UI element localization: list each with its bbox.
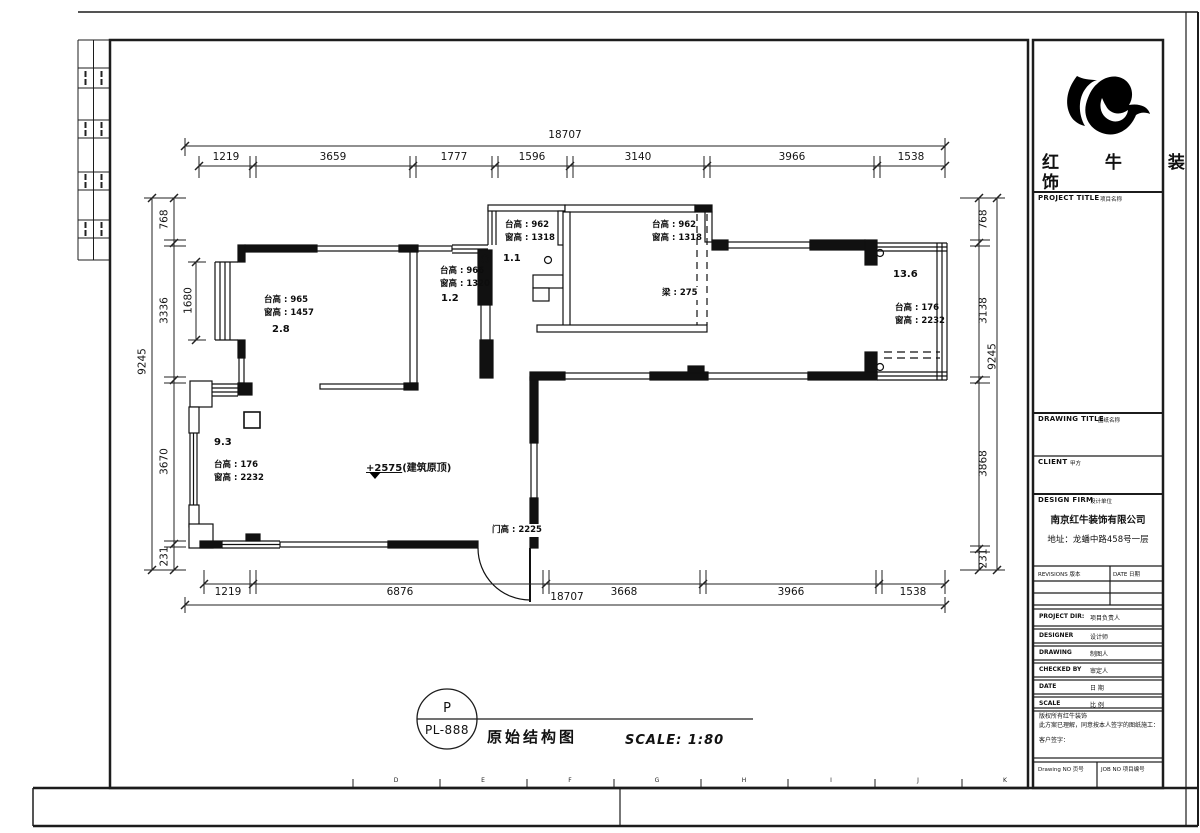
row-date-en: DATE <box>1039 683 1056 690</box>
grid-letter: I <box>825 777 837 784</box>
logo-text-line2: 饰 <box>1042 168 1059 193</box>
firm-name: 南京红牛装饰有限公司 <box>1037 512 1159 526</box>
dim-interior-window: 1680 <box>183 273 196 329</box>
area-room-e: 13.6 <box>893 269 918 280</box>
annotation-room-e: 台高 : 176 窗高 : 2232 <box>895 302 945 328</box>
annotation-beam: 梁 : 275 <box>662 287 698 300</box>
drawing-title-label-cn: 图纸名称 <box>1098 416 1120 424</box>
dim-top-seg: 3659 <box>303 151 363 164</box>
plan-linework <box>0 0 1200 833</box>
dim-right-seg: 768 <box>978 192 991 248</box>
client-label: CLIENT <box>1038 458 1067 466</box>
project-title-label-cn: 项目名称 <box>1100 195 1122 203</box>
row-designer-cn: 设计师 <box>1090 632 1108 641</box>
stamp-scale: SCALE: 1:80 <box>625 733 724 748</box>
dim-top-seg: 1596 <box>502 151 562 164</box>
dim-bottom-overall: 18707 <box>537 591 597 604</box>
dim-bottom-seg: 6876 <box>370 586 430 599</box>
row-project-dir-cn: 项目负责人 <box>1090 613 1120 622</box>
grid-letter: K <box>999 777 1011 784</box>
dim-left-seg: 3336 <box>159 283 172 339</box>
floor-plan-walls <box>189 205 947 602</box>
grid-letter: H <box>738 777 750 784</box>
dim-left-overall: 9245 <box>137 334 150 390</box>
rednow-bull-logo-icon <box>1067 76 1150 134</box>
stamp-title: 原始结构图 <box>487 726 577 747</box>
dim-bottom-seg: 3668 <box>594 586 654 599</box>
design-firm-label-cn: 设计单位 <box>1090 497 1112 505</box>
dim-right-seg: 231 <box>978 531 991 587</box>
dim-top-seg: 1777 <box>424 151 484 164</box>
client-signature-label: 客户签字： <box>1039 736 1159 745</box>
dim-top-seg: 3966 <box>762 151 822 164</box>
level-note: (建筑原顶) <box>402 463 451 474</box>
logo-text-line1: 红 牛 装 <box>1042 148 1200 173</box>
annotation-door-height: 门高 : 2225 <box>492 524 542 537</box>
dim-left-seg: 768 <box>159 192 172 248</box>
stamp-letter: P <box>437 701 457 716</box>
client-label-cn: 甲方 <box>1070 459 1081 467</box>
row-designer-en: DESIGNER <box>1039 632 1073 639</box>
dim-top-seg: 1219 <box>196 151 256 164</box>
dim-top-seg: 1538 <box>881 151 941 164</box>
grid-letter: D <box>390 777 402 784</box>
design-firm-label: DESIGN FIRM <box>1038 496 1093 504</box>
annotation-room-n1: 台高 : 962 窗高 : 1318 <box>505 219 555 245</box>
annotation-living: 台高 : 176 窗高 : 2232 <box>214 459 264 485</box>
level-marker-icon <box>369 472 381 479</box>
dim-top-overall: 18707 <box>535 129 595 142</box>
revisions-label: REVISIONS 版本 <box>1038 570 1080 578</box>
dim-right-seg: 3868 <box>978 436 991 492</box>
dim-bottom-seg: 1219 <box>198 586 258 599</box>
row-scale-en: SCALE <box>1039 700 1060 707</box>
stamp-code: PL-888 <box>420 723 474 737</box>
date-col-label: DATE 日期 <box>1113 570 1140 578</box>
row-drawing-en: DRAWING <box>1039 649 1072 656</box>
row-date-cn: 日 期 <box>1090 683 1104 692</box>
sheet-frame <box>33 12 1198 826</box>
copyright-notice-line1: 版权所有红牛装饰 <box>1039 712 1159 721</box>
area-room-n1: 1.1 <box>503 253 521 264</box>
annotation-room-n2: 台高 : 962 窗高 : 1318 <box>652 219 702 245</box>
area-hall: 1.2 <box>441 293 459 304</box>
project-title-label: PROJECT TITLE <box>1038 194 1100 202</box>
copyright-notice-line2: 此方案已理解，同意按本人签字的图纸施工： <box>1039 721 1159 730</box>
drawing-no-label: Drawing NO 页号 <box>1038 765 1084 773</box>
grid-letter: F <box>564 777 576 784</box>
row-drawing-cn: 制图人 <box>1090 649 1108 658</box>
row-project-dir-en: PROJECT DIR: <box>1039 613 1084 620</box>
grid-letter: E <box>477 777 489 784</box>
drawing-title-label: DRAWING TITLE <box>1038 415 1104 423</box>
dim-right-seg: 3138 <box>978 283 991 339</box>
dim-bottom-seg: 1538 <box>883 586 943 599</box>
dim-left-seg: 231 <box>159 529 172 585</box>
frame-edge-cells <box>78 40 110 260</box>
area-living: 9.3 <box>214 437 232 448</box>
dim-bottom-seg: 3966 <box>761 586 821 599</box>
row-scale-cn: 比 例 <box>1090 700 1104 709</box>
grid-letter: G <box>651 777 663 784</box>
row-checked-by-en: CHECKED BY <box>1039 666 1081 673</box>
grid-letter: J <box>912 777 924 784</box>
annotation-hall: 台高 : 966 窗高 : 1320 <box>440 265 490 291</box>
firm-address: 地址：龙蟠中路458号一层 <box>1037 533 1159 545</box>
row-checked-by-cn: 审定人 <box>1090 666 1108 675</box>
dim-top-seg: 3140 <box>608 151 668 164</box>
area-room-nw: 2.8 <box>272 324 290 335</box>
dim-left-seg: 3670 <box>159 434 172 490</box>
drawing-sheet: 18707 1219 3659 1777 1596 3140 3966 1538… <box>0 0 1200 833</box>
annotation-room-nw: 台高 : 965 窗高 : 1457 <box>264 294 314 320</box>
job-no-label: JOB NO 项目编号 <box>1101 765 1145 773</box>
